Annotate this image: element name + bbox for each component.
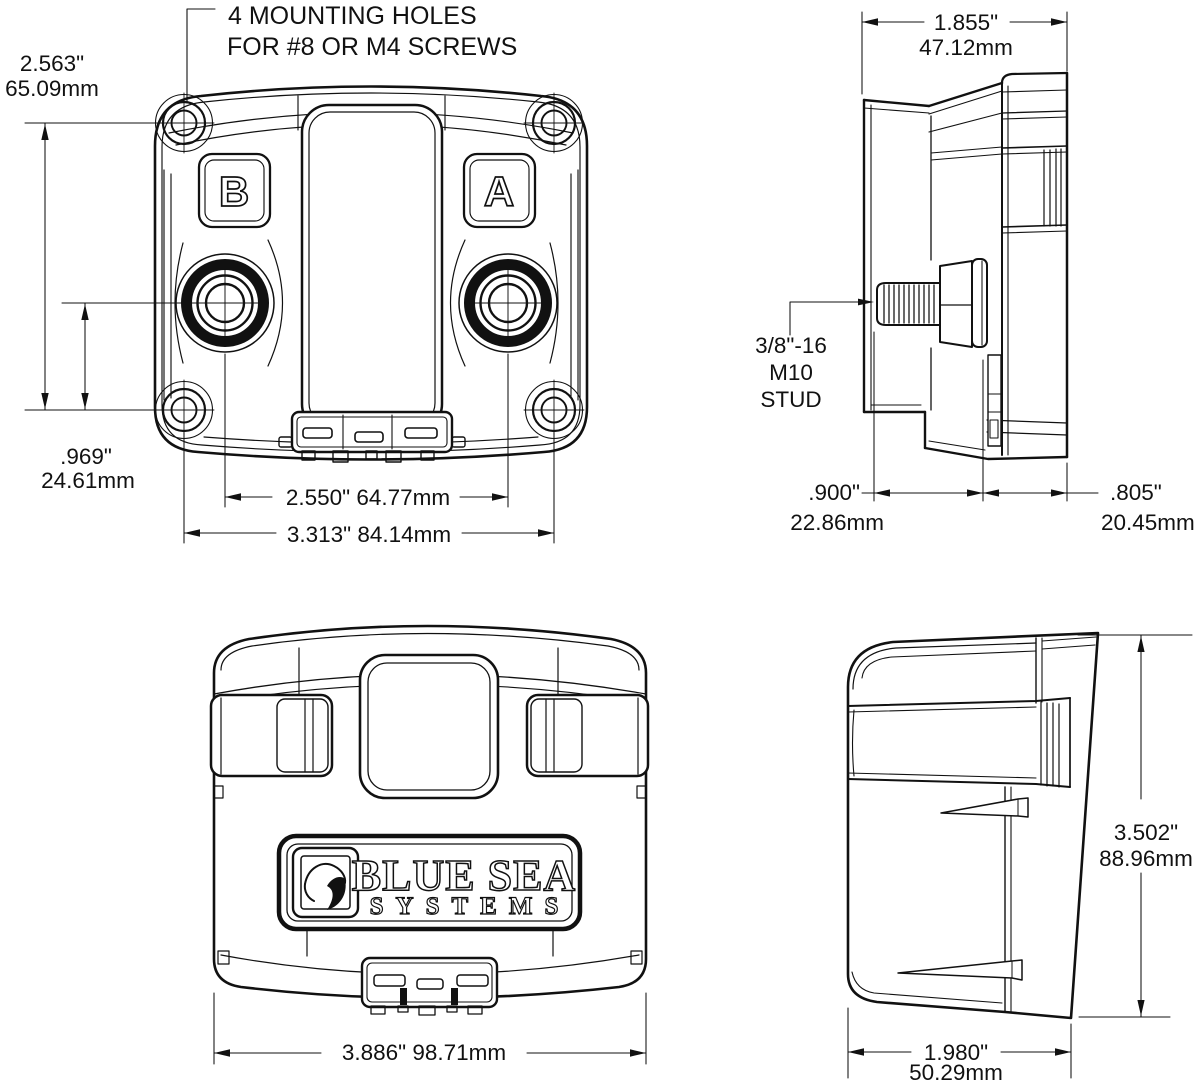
dim-stud-length-in: .900" (808, 480, 860, 505)
dim-overall-depth-mm: 47.12mm (919, 35, 1013, 60)
stud-a (451, 240, 559, 366)
dim-overall-height: 3.502" 88.96mm (1078, 635, 1193, 1017)
side-bottom-body (848, 633, 1098, 1018)
dim-overall-depth: 1.855" 47.12mm (862, 10, 1067, 94)
center-boss (360, 655, 498, 798)
dim-stud-offset: .969" 24.61mm (41, 303, 195, 493)
dim-mount-height-in: 2.563" (20, 51, 84, 76)
button-b: B (199, 154, 270, 227)
dim-stud-length-mm: 22.86mm (790, 510, 884, 535)
stud-callout-line2: M10 (769, 360, 813, 385)
button-a-label: A (484, 168, 514, 215)
side-view-bottom: 3.502" 88.96mm 1.980" 50.29mm (848, 633, 1193, 1081)
technical-drawing-page: B A (0, 0, 1200, 1081)
button-b-label: B (219, 168, 249, 215)
stud-callout-line1: 3/8"-16 (755, 333, 827, 358)
mounting-note-line2: FOR #8 OR M4 SCREWS (227, 33, 517, 61)
terminal-block-bottom (362, 958, 497, 1015)
dim-overall-height-in: 3.502" (1114, 820, 1178, 845)
stud-callout-line3: STUD (760, 387, 821, 412)
dim-stud-spacing-label: 2.550" 64.77mm (286, 485, 450, 510)
dim-overall-width-label: 3.886" 98.71mm (342, 1040, 506, 1065)
side-view-top: 3/8"-16 M10 STUD 1.855" 47.12mm .900" 22… (755, 10, 1195, 535)
dim-base-depth-mm: 50.29mm (909, 1060, 1003, 1081)
dim-overall-depth-in: 1.855" (934, 10, 998, 35)
dim-mount-height: 2.563" 65.09mm (5, 51, 170, 410)
dim-stud-offset-in: .969" (60, 444, 112, 469)
stud-side-profile (877, 259, 1001, 446)
dim-base-depth: 1.980" 50.29mm (848, 1008, 1071, 1081)
logo-plate: BLUE SEA SYSTEMS (279, 836, 580, 929)
dim-rear-depth: .805" 20.45mm (983, 480, 1195, 535)
mounting-note-line1: 4 MOUNTING HOLES (228, 2, 477, 30)
button-a: A (464, 154, 535, 227)
dim-rear-depth-mm: 20.45mm (1101, 510, 1195, 535)
stud-callout: 3/8"-16 M10 STUD (755, 299, 874, 412)
front-view: B A (5, 2, 587, 547)
dimension-drawing: B A (0, 0, 1200, 1081)
mounting-hole-bottom-right (524, 380, 584, 440)
bottom-view: BLUE SEA SYSTEMS 3.886" 98.71mm (211, 626, 648, 1065)
terminal-block-front (279, 412, 465, 462)
side-clip-left (211, 695, 332, 776)
side-clip-right (527, 695, 648, 776)
dim-mount-height-mm: 65.09mm (5, 76, 99, 101)
brand-subname: SYSTEMS (370, 893, 571, 920)
center-panel (302, 105, 442, 436)
dim-rear-depth-in: .805" (1110, 480, 1162, 505)
dim-overall-height-mm: 88.96mm (1099, 846, 1193, 871)
dim-stud-offset-mm: 24.61mm (41, 468, 135, 493)
dim-mount-width-label: 3.313" 84.14mm (287, 522, 451, 547)
